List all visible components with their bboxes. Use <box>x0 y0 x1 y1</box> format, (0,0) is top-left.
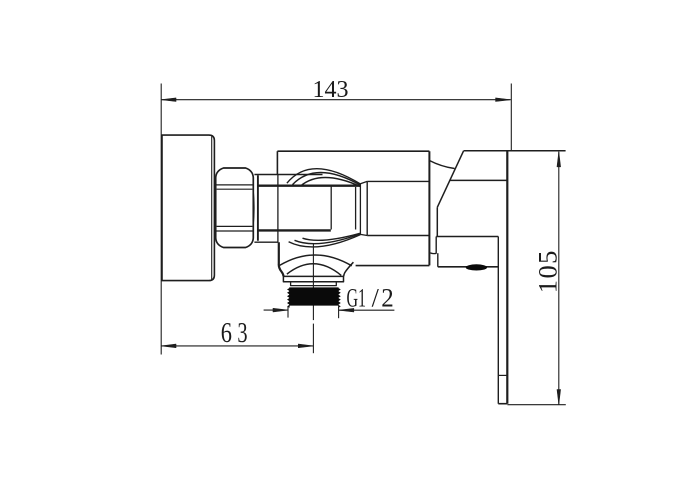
svg-text:143: 143 <box>313 77 349 103</box>
svg-text:G1: G1 <box>347 284 367 313</box>
svg-text:3: 3 <box>237 318 247 349</box>
svg-text:2: 2 <box>381 284 394 313</box>
svg-text:6: 6 <box>221 318 232 349</box>
svg-text:/: / <box>372 284 380 313</box>
svg-text:105: 105 <box>533 249 563 293</box>
